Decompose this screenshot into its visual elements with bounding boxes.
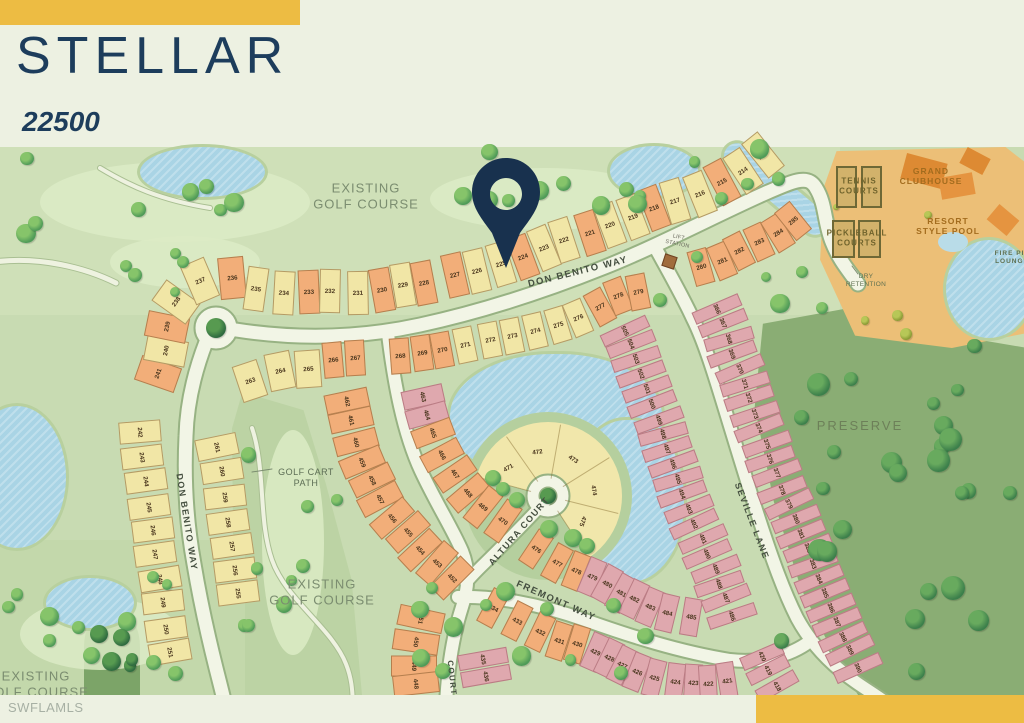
tree xyxy=(199,179,214,194)
tree xyxy=(411,601,428,618)
lot-number: 255 xyxy=(234,587,242,598)
lot-number: 473 xyxy=(567,453,579,464)
lot-number: 260 xyxy=(218,465,226,476)
lot-number: 232 xyxy=(325,288,335,295)
tree xyxy=(146,655,161,670)
tree xyxy=(331,494,343,506)
gold-accent-bar-top xyxy=(0,0,300,25)
tree xyxy=(827,445,841,459)
lot-number: 279 xyxy=(632,288,643,297)
lot-number: 472 xyxy=(531,448,542,456)
lot-number: 484 xyxy=(661,609,673,618)
lot-number: 388 xyxy=(838,631,848,643)
tree xyxy=(939,428,962,451)
lot-number: 280 xyxy=(695,262,707,271)
tree xyxy=(817,541,838,562)
lot-number: 497 xyxy=(662,443,672,455)
lot-number: 264 xyxy=(274,367,285,376)
lot-number: 492 xyxy=(689,518,699,530)
lot-number: 467 xyxy=(449,468,460,480)
lot-number: 496 xyxy=(668,458,678,470)
tree xyxy=(968,610,989,631)
lot-number: 238 xyxy=(170,296,181,308)
lot-number: 422 xyxy=(703,680,714,687)
tree xyxy=(796,266,808,278)
lot-number: 229 xyxy=(397,281,408,289)
tree xyxy=(2,601,15,614)
lot-number: 373 xyxy=(750,408,760,420)
lot-number: 468 xyxy=(462,487,474,499)
tree xyxy=(168,666,183,681)
lot-number: 501 xyxy=(642,383,652,395)
tree xyxy=(182,183,200,201)
tree xyxy=(11,588,24,601)
lot-number: 257 xyxy=(228,540,236,551)
tree xyxy=(927,449,949,471)
lot-266: 266 xyxy=(321,341,344,379)
tree xyxy=(28,216,43,231)
lot-number: 499 xyxy=(654,414,664,426)
lot-number: 457 xyxy=(375,493,386,505)
lot-number: 270 xyxy=(436,346,447,354)
lot-number: 504 xyxy=(626,338,636,350)
lot-number: 374 xyxy=(754,422,764,434)
listing-map-image: 2412402392382372362352342332322312302292… xyxy=(0,0,1024,723)
location-pin-icon xyxy=(468,156,544,274)
lot-number: 384 xyxy=(814,573,824,585)
lot-number: 258 xyxy=(224,516,232,527)
dry-retention-label: DRYRETENTION xyxy=(846,273,886,289)
lot-number: 285 xyxy=(787,215,799,227)
tree xyxy=(162,579,173,590)
lot-number: 418 xyxy=(772,680,783,692)
lot-number: 230 xyxy=(376,286,387,294)
lot-number: 236 xyxy=(227,274,238,282)
tree xyxy=(774,633,790,649)
tree xyxy=(412,649,430,667)
lot-number: 265 xyxy=(303,365,314,372)
lot-number: 227 xyxy=(449,271,461,280)
lot-number: 500 xyxy=(647,398,657,410)
lot-233: 233 xyxy=(298,270,321,315)
lot-number: 474 xyxy=(590,484,598,495)
existing-golf-course-top: EXISTINGGOLF COURSE xyxy=(313,180,419,211)
lot-number: 459 xyxy=(357,456,367,468)
lot-number: 237 xyxy=(194,276,206,286)
lot-number: 435 xyxy=(479,653,487,664)
mls-watermark: SWFLAMLS xyxy=(8,700,84,715)
lot-number: 420 xyxy=(757,650,767,662)
lot-number: 502 xyxy=(636,368,646,380)
lot-234: 234 xyxy=(272,270,295,315)
tree xyxy=(637,628,654,645)
lot-number: 218 xyxy=(648,203,660,213)
lot-number: 470 xyxy=(497,515,509,526)
lot-number: 477 xyxy=(551,558,563,569)
tree xyxy=(691,251,703,263)
tree xyxy=(772,172,785,185)
lot-number: 261 xyxy=(213,441,222,452)
lot-number: 452 xyxy=(446,572,458,584)
lot-number: 246 xyxy=(149,524,157,535)
preserve-label: PRESERVE xyxy=(817,418,904,434)
tree xyxy=(927,397,940,410)
gold-accent-bar-bottom xyxy=(756,695,1024,723)
tree xyxy=(892,310,903,321)
lot-number: 274 xyxy=(529,327,541,336)
lot-number: 460 xyxy=(351,436,360,448)
lot-number: 471 xyxy=(502,463,514,474)
lot-number: 419 xyxy=(763,664,774,676)
lot-number: 278 xyxy=(612,291,624,301)
lot-number: 368 xyxy=(724,333,733,345)
tree xyxy=(241,447,256,462)
lot-number: 386 xyxy=(826,602,836,614)
lot-number: 381 xyxy=(796,528,806,540)
lot-number: 379 xyxy=(784,498,794,510)
lot-number: 425 xyxy=(648,673,660,682)
lot-number: 275 xyxy=(552,320,564,329)
lot-number: 215 xyxy=(716,177,728,188)
lot-number: 458 xyxy=(367,474,377,486)
lot-number: 272 xyxy=(484,336,495,344)
lot-number: 479 xyxy=(586,572,598,582)
lot-242: 242 xyxy=(118,419,162,444)
tree xyxy=(20,152,34,166)
lot-number: 390 xyxy=(853,662,863,674)
existing-golf-course-bottom: EXISTINGGOLF COURSE xyxy=(269,576,375,607)
lot-number: 242 xyxy=(136,427,143,438)
lot-number: 380 xyxy=(791,513,801,525)
lot-number: 436 xyxy=(482,670,490,681)
tree xyxy=(807,373,830,396)
lot-number: 430 xyxy=(571,639,583,648)
fire-pit-lounge-label: FIRE PITLOUNGE xyxy=(995,250,1024,266)
lot-number: 220 xyxy=(604,220,616,230)
lot-268: 268 xyxy=(389,337,412,374)
lot-267: 267 xyxy=(344,339,366,376)
tree xyxy=(592,196,610,214)
lot-number: 465 xyxy=(428,427,438,439)
lot-number: 491 xyxy=(698,533,708,545)
lot-number: 453 xyxy=(431,557,443,569)
lot-number: 448 xyxy=(412,679,420,690)
tree xyxy=(750,139,769,158)
lot-number: 494 xyxy=(677,488,687,500)
lot-number: 222 xyxy=(558,235,570,245)
lot-number: 244 xyxy=(142,475,150,486)
lot-number: 277 xyxy=(594,302,606,313)
lot-number: 433 xyxy=(511,616,523,627)
lot-number: 486 xyxy=(727,610,737,622)
lot-number: 378 xyxy=(777,484,787,496)
lot-number: 493 xyxy=(684,503,694,515)
tree xyxy=(900,328,912,340)
lot-number: 376 xyxy=(765,453,775,465)
tree xyxy=(816,482,829,495)
lot-number: 431 xyxy=(553,636,565,646)
pickleball-courts-label: PICKLEBALLCOURTS xyxy=(827,228,888,247)
tennis-courts-label: TENNISCOURTS xyxy=(839,176,879,195)
tree xyxy=(556,176,571,191)
tree xyxy=(889,464,907,482)
lot-number: 498 xyxy=(658,428,667,440)
lot-number: 375 xyxy=(762,438,772,450)
lot-number: 281 xyxy=(716,256,728,266)
lot-number: 243 xyxy=(138,451,146,462)
tree xyxy=(496,482,510,496)
lot-number: 263 xyxy=(244,376,256,386)
grand-clubhouse-label: GRANDCLUBHOUSE xyxy=(900,166,963,186)
resort-style-pool-label: RESORTSTYLE POOL xyxy=(916,216,980,236)
lot-number: 245 xyxy=(145,501,153,512)
tree xyxy=(908,663,925,680)
tree xyxy=(833,520,852,539)
tree xyxy=(614,666,628,680)
tree xyxy=(770,294,789,313)
lot-number: 276 xyxy=(572,313,584,323)
tree xyxy=(741,178,753,190)
lot-number: 372 xyxy=(744,392,754,404)
lot-number: 228 xyxy=(418,279,429,287)
lot-number: 482 xyxy=(628,594,640,604)
tree xyxy=(126,653,138,665)
lot-number: 488 xyxy=(714,578,724,590)
lot-number: 247 xyxy=(151,548,159,559)
lot-number: 266 xyxy=(328,356,339,364)
tree xyxy=(43,634,55,646)
lot-number: 387 xyxy=(832,616,842,628)
lot-number: 217 xyxy=(669,196,681,205)
lot-number: 219 xyxy=(627,212,639,222)
lot-number: 283 xyxy=(753,237,765,247)
lot-number: 385 xyxy=(820,587,830,599)
lot-number: 426 xyxy=(631,667,643,677)
tree xyxy=(131,202,146,217)
lot-number: 273 xyxy=(506,332,517,341)
lot-number: 256 xyxy=(231,564,239,575)
lot-265: 265 xyxy=(294,349,323,389)
tree xyxy=(1003,486,1017,500)
lot-number: 214 xyxy=(737,165,749,176)
lot-number: 268 xyxy=(395,352,406,359)
lot-number: 487 xyxy=(721,592,731,604)
lot-number: 369 xyxy=(727,348,737,360)
tree xyxy=(794,410,809,425)
tree xyxy=(955,486,969,500)
lot-number: 483 xyxy=(644,602,656,612)
lot-number: 249 xyxy=(159,596,167,607)
lot-number: 240 xyxy=(162,345,170,356)
tree xyxy=(951,384,963,396)
site-map: 2412402392382372362352342332322312302292… xyxy=(0,0,1024,723)
tree xyxy=(251,562,263,574)
lot-number: 463 xyxy=(419,391,428,403)
lot-number: 423 xyxy=(688,679,699,686)
golf-cart-path-label: GOLF CARTPATH xyxy=(278,467,334,489)
lot-number: 490 xyxy=(702,548,712,560)
lot-number: 367 xyxy=(718,317,728,329)
tree xyxy=(816,302,829,315)
tree xyxy=(301,500,313,512)
lot-number: 480 xyxy=(601,579,613,590)
lot-number: 259 xyxy=(221,491,229,502)
tree xyxy=(579,538,595,554)
tree xyxy=(512,646,532,666)
tree xyxy=(540,520,558,538)
lot-number: 234 xyxy=(279,289,290,296)
lot-number: 284 xyxy=(772,227,784,238)
lot-number: 251 xyxy=(166,646,174,657)
lot-number: 505 xyxy=(620,325,630,337)
lot-number: 478 xyxy=(570,566,582,576)
lot-number: 239 xyxy=(163,321,172,332)
lot-number: 469 xyxy=(477,501,489,513)
tree xyxy=(628,195,647,214)
lot-number: 455 xyxy=(402,526,414,538)
listing-lot-number: 22500 xyxy=(22,106,100,138)
lot-number: 282 xyxy=(733,246,745,257)
lot-number: 389 xyxy=(845,644,855,656)
lot-number: 233 xyxy=(304,288,315,295)
tree xyxy=(509,492,525,508)
lot-number: 271 xyxy=(459,341,470,350)
tree xyxy=(128,268,142,282)
tree xyxy=(689,156,700,167)
lot-number: 267 xyxy=(350,354,361,361)
lot-number: 476 xyxy=(530,543,542,554)
tree xyxy=(296,559,310,573)
lot-number: 269 xyxy=(416,349,427,357)
lot-number: 216 xyxy=(694,189,706,199)
lot-232: 232 xyxy=(319,269,341,313)
lot-number: 489 xyxy=(711,563,721,575)
lot-number: 456 xyxy=(386,512,398,524)
lot-number: 231 xyxy=(353,290,363,297)
lot-number: 235 xyxy=(250,285,261,293)
lot-number: 432 xyxy=(534,627,546,637)
tree xyxy=(206,318,226,338)
lot-number: 241 xyxy=(153,368,163,380)
lot-number: 475 xyxy=(578,515,588,527)
lot-number: 450 xyxy=(412,636,420,647)
lot-number: 503 xyxy=(631,353,641,365)
tree xyxy=(72,621,84,633)
lot-number: 424 xyxy=(669,678,680,686)
lot-number: 454 xyxy=(414,544,426,556)
tree xyxy=(113,629,130,646)
tree xyxy=(653,293,667,307)
tree xyxy=(861,316,869,324)
lot-number: 371 xyxy=(740,378,749,390)
lot-number: 466 xyxy=(437,449,448,461)
community-title: STELLAR xyxy=(16,26,289,86)
tree xyxy=(967,339,981,353)
lot-number: 485 xyxy=(685,613,696,621)
lot-number: 495 xyxy=(673,473,682,485)
lot-number: 464 xyxy=(422,409,431,421)
lot-number: 462 xyxy=(343,395,352,406)
lot-number: 421 xyxy=(721,677,732,685)
lot-number: 366 xyxy=(712,303,722,315)
tree xyxy=(480,599,492,611)
tree xyxy=(565,654,577,666)
lot-number: 370 xyxy=(735,363,745,375)
lot-number: 461 xyxy=(347,414,356,426)
lot-number: 221 xyxy=(584,228,596,238)
lot-number: 377 xyxy=(772,467,782,479)
lot-number: 250 xyxy=(162,623,170,634)
lot-236: 236 xyxy=(217,256,247,300)
tree xyxy=(224,193,244,213)
lot-231: 231 xyxy=(347,271,369,315)
